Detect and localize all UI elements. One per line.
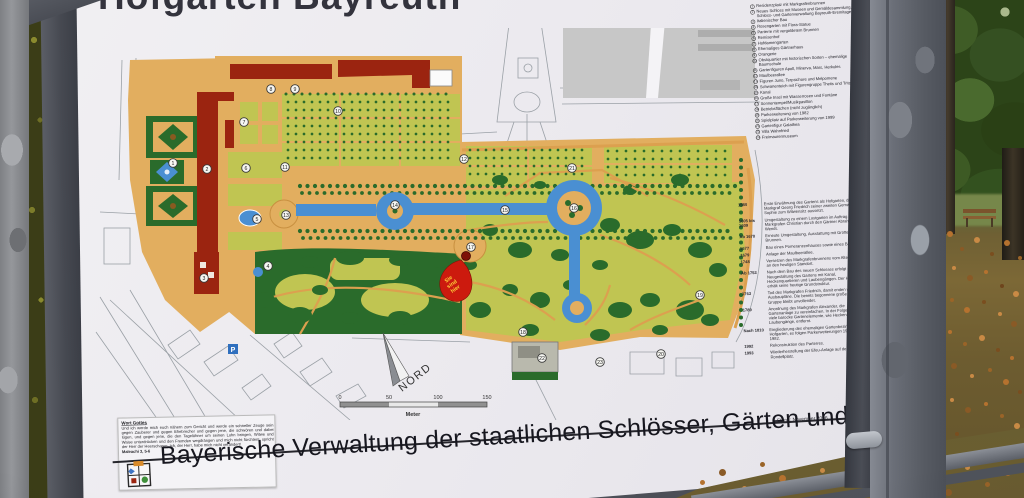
map-marker: 10 [334, 107, 343, 116]
svg-text:3: 3 [203, 276, 206, 282]
svg-text:11: 11 [282, 165, 287, 171]
map-marker: 14 [391, 201, 400, 210]
metal-post-left [0, 0, 29, 498]
timeline-year: 1677 [740, 245, 763, 251]
timeline-year: 1748 [740, 259, 763, 269]
sign-title: Hofgarten Bayreuth [98, 0, 618, 18]
map-marker: 4 [264, 262, 273, 271]
svg-text:0: 0 [338, 395, 341, 401]
map-marker: 18 [519, 328, 528, 337]
map-marker: 22 [538, 354, 547, 363]
legend-item-number: 22 [755, 130, 760, 135]
svg-text:13: 13 [283, 213, 289, 219]
svg-text:23: 23 [597, 360, 603, 366]
tree-trunk [1002, 148, 1024, 260]
compass-north-arrow: NORD [383, 333, 434, 394]
timeline-year: 1605 bis 1609 [739, 218, 762, 233]
svg-text:P: P [231, 347, 236, 354]
map-marker: 6 [242, 164, 251, 173]
svg-text:17: 17 [468, 245, 474, 251]
timeline-year: Ab 1670 [739, 234, 762, 244]
park-map: NORD 050100150 Meter P Siesindhier [95, 28, 767, 420]
legend-item-number: 18 [755, 107, 760, 112]
timeline-year: Ab 1753 [741, 271, 764, 290]
timeline-year: Nach 1810 [743, 328, 766, 343]
legend-item-number: 14 [754, 85, 759, 90]
map-marker: 19 [696, 291, 705, 300]
map-marker: 12 [460, 155, 469, 164]
map-marker: 17 [467, 243, 476, 252]
park-sign-photo: Hofgarten Bayreuth [0, 0, 1024, 498]
svg-text:21: 21 [569, 166, 575, 172]
map-marker: 16 [570, 204, 579, 213]
svg-text:10: 10 [335, 109, 341, 115]
sign-frame-edge [40, 0, 83, 498]
svg-text:100: 100 [433, 395, 442, 401]
legend-item-number: 6 [751, 36, 756, 41]
legend-item-number: 15 [754, 91, 759, 96]
urban-blocks [563, 28, 755, 98]
legend-item-number: 17 [754, 102, 759, 107]
park-bench [991, 218, 993, 227]
legend-item-number: 20 [755, 119, 760, 124]
parking-icon: P [228, 344, 238, 354]
map-marker: 9 [291, 85, 300, 94]
timeline-year: 1992 [744, 344, 767, 350]
map-marker: 8 [267, 85, 276, 94]
svg-text:150: 150 [482, 395, 491, 401]
timeline-year: 1993 [744, 351, 767, 361]
legend-item-number: 5 [751, 31, 756, 36]
svg-text:22: 22 [539, 356, 545, 362]
svg-text:7: 7 [243, 120, 246, 126]
map-marker: 13 [282, 211, 291, 220]
metal-post-seam [886, 0, 889, 498]
svg-text:5: 5 [256, 217, 259, 223]
svg-text:20: 20 [658, 352, 664, 358]
park-bench [966, 218, 968, 227]
map-marker: 23 [596, 358, 605, 367]
svg-text:8: 8 [270, 87, 273, 93]
legend-item-number: 10 [752, 59, 757, 64]
map-marker: 5 [253, 215, 262, 224]
timeline-year: 1763 [742, 291, 765, 306]
scale-ticks: 050100150 [338, 395, 491, 401]
park-bench [963, 209, 996, 213]
legend-item-number: 8 [752, 47, 757, 52]
timeline-year: 1679 [740, 252, 763, 258]
svg-text:9: 9 [294, 87, 297, 93]
legend-item-number: 11 [753, 68, 758, 73]
svg-text:14: 14 [392, 203, 398, 209]
map-marker: 2 [203, 165, 212, 174]
schloesserverwaltung-logo-icon [126, 460, 151, 487]
legend-item-number: 4 [751, 25, 756, 30]
legend-item-number: 9 [752, 53, 757, 58]
svg-text:16: 16 [571, 206, 577, 212]
map-marker: 11 [281, 163, 290, 172]
svg-text:12: 12 [461, 157, 467, 163]
svg-text:6: 6 [245, 166, 248, 172]
map-marker: 21 [568, 164, 577, 173]
scale-unit: Meter [406, 412, 422, 418]
legend-item-number: 13 [753, 79, 758, 84]
metal-post-right [870, 0, 946, 498]
legend-item-number: 16 [754, 96, 759, 101]
timeline-year: 1789 [743, 307, 766, 326]
svg-text:4: 4 [267, 264, 270, 270]
svg-text:50: 50 [386, 395, 392, 401]
legend-item-number: 12 [753, 74, 758, 79]
map-marker: 15 [501, 206, 510, 215]
map-marker: 20 [657, 350, 666, 359]
legend-item-number: 3 [751, 19, 756, 24]
legend-item-label: Kanal [760, 90, 771, 95]
svg-text:18: 18 [520, 330, 526, 336]
map-marker: 7 [240, 118, 249, 127]
legend-item-number: 1 [750, 4, 755, 9]
legend-item-number: 21 [755, 124, 760, 129]
legend-item-label: Freimaurermuseum [762, 133, 798, 139]
legend-item-number: 23 [756, 135, 761, 140]
map-marker: 3 [200, 274, 209, 283]
legend-item-number: 7 [752, 42, 757, 47]
timeline-year: 1580 [738, 202, 761, 217]
svg-text:1: 1 [172, 161, 175, 167]
legend-item-number: 2 [750, 10, 755, 15]
map-marker: 1 [169, 159, 178, 168]
legend-item-number: 19 [755, 113, 760, 118]
svg-text:2: 2 [206, 167, 209, 173]
svg-text:19: 19 [697, 293, 703, 299]
svg-text:15: 15 [502, 208, 508, 214]
